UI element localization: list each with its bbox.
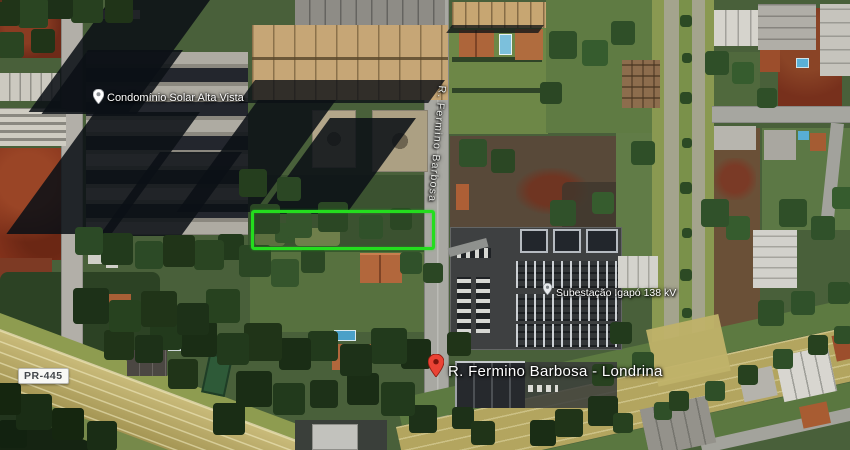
condominium-pin-icon[interactable] bbox=[93, 89, 104, 109]
building bbox=[758, 4, 816, 50]
terrain-lawn bbox=[712, 52, 760, 110]
building bbox=[714, 126, 756, 150]
building-red-roof bbox=[760, 50, 780, 72]
substation-building bbox=[553, 229, 581, 253]
road-shield-pr445: PR-445 bbox=[18, 368, 69, 384]
building-orange-roof bbox=[104, 294, 131, 311]
swimming-pool bbox=[798, 131, 809, 140]
condominium-label[interactable]: Condomínio Solar Alta Vista bbox=[107, 92, 244, 104]
sports-court bbox=[201, 353, 233, 397]
satellite-map[interactable]: Condomínio Solar Alta Vista R. Fermino B… bbox=[0, 0, 850, 450]
terrain-red-soil bbox=[0, 0, 62, 58]
swimming-pool bbox=[796, 58, 809, 68]
building bbox=[312, 424, 358, 450]
building-warehouse bbox=[618, 256, 658, 288]
lot-highlight-rectangle bbox=[251, 210, 435, 250]
building-orange-roof bbox=[810, 133, 826, 151]
parked-cars bbox=[528, 385, 558, 392]
terrain-red-patch bbox=[714, 158, 756, 200]
main-street-label[interactable]: R. Fermino Barbosa - Londrina bbox=[448, 363, 663, 380]
building bbox=[764, 130, 796, 160]
hedge-row bbox=[452, 88, 542, 93]
building-orange-roof bbox=[515, 29, 543, 60]
building-orange-roof bbox=[360, 253, 402, 283]
building-shed-orange bbox=[456, 184, 469, 210]
substation-equipment bbox=[516, 261, 618, 288]
building-shed bbox=[106, 258, 118, 268]
terrain-lawn bbox=[250, 252, 440, 332]
building-dark-roof bbox=[127, 350, 167, 376]
swimming-pool bbox=[172, 337, 187, 349]
building bbox=[714, 10, 758, 46]
building-orange-roof bbox=[332, 344, 372, 370]
building-construction bbox=[622, 60, 660, 108]
substation-building bbox=[520, 229, 548, 253]
building bbox=[295, 0, 445, 26]
substation-label[interactable]: Subestação Igapó 138 kV bbox=[556, 287, 676, 299]
substation-pin-icon[interactable] bbox=[543, 282, 552, 300]
swimming-pool bbox=[334, 330, 356, 341]
street-right-horizontal bbox=[712, 106, 850, 123]
building-orange-roof bbox=[459, 30, 494, 57]
building-warehouse bbox=[753, 230, 797, 288]
building bbox=[820, 4, 850, 76]
building-shadow bbox=[446, 25, 544, 33]
substation-equipment bbox=[516, 324, 618, 347]
parked-cars bbox=[476, 277, 490, 333]
red-marker-pin-icon[interactable] bbox=[428, 354, 444, 382]
avenue-tint bbox=[652, 0, 714, 352]
swimming-pool bbox=[499, 34, 512, 55]
parked-cars bbox=[457, 277, 471, 333]
substation-building bbox=[586, 229, 618, 253]
building-shed bbox=[88, 252, 104, 264]
tree-cluster bbox=[0, 0, 2, 2]
